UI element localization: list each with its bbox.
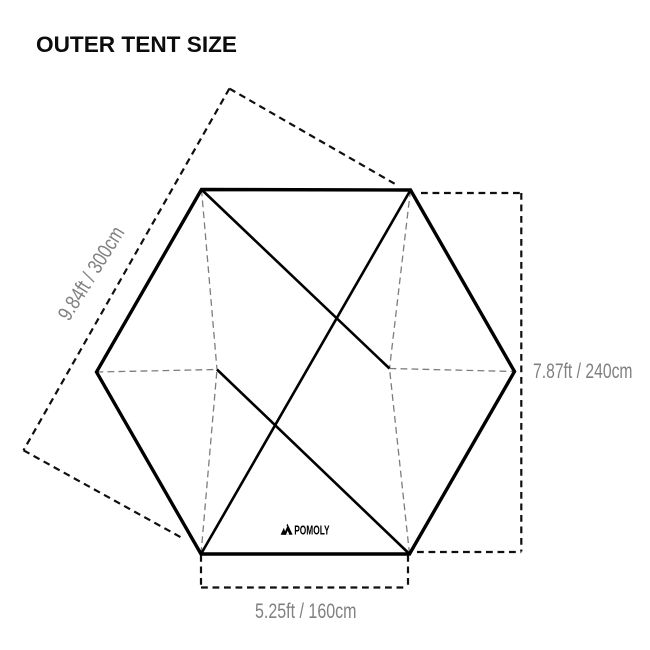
svg-text:5.25ft / 160cm: 5.25ft / 160cm — [255, 600, 357, 623]
svg-text:POMOLY: POMOLY — [294, 524, 330, 538]
svg-text:OUTER TENT SIZE: OUTER TENT SIZE — [36, 32, 237, 57]
svg-text:7.87ft / 240cm: 7.87ft / 240cm — [533, 360, 633, 383]
